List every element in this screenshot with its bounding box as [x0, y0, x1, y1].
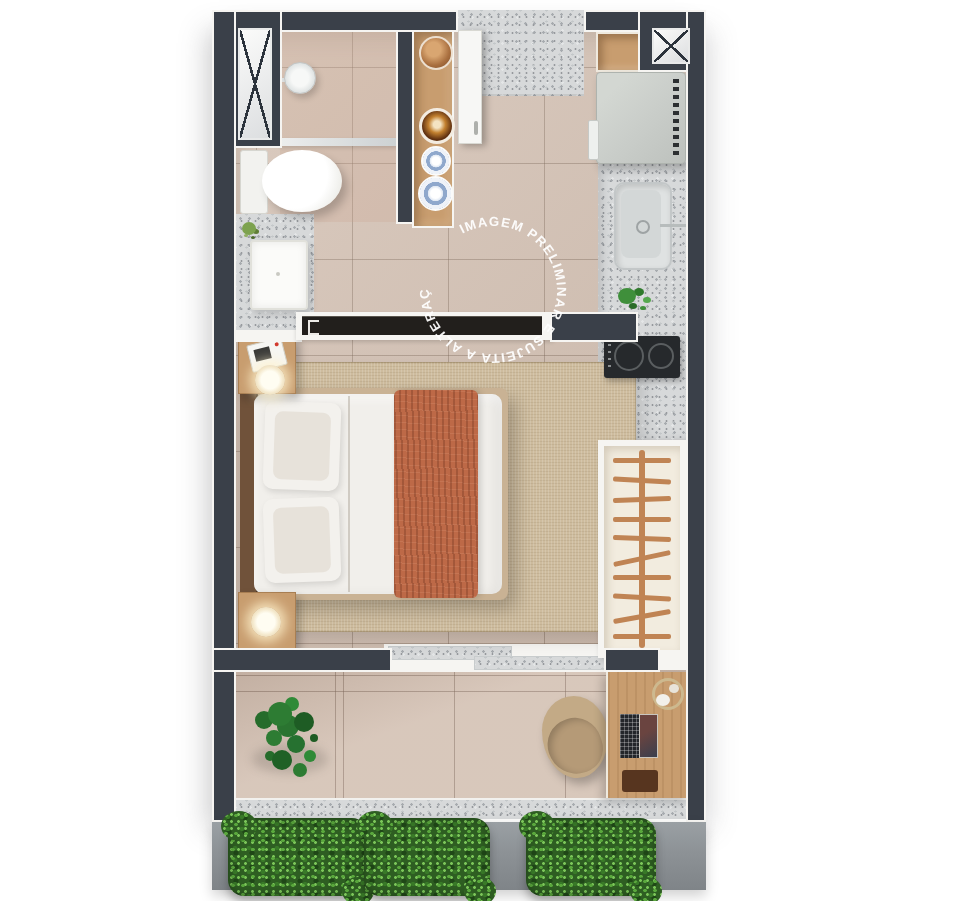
pillow-bottom	[263, 497, 342, 584]
closet-hanger	[613, 634, 671, 639]
plant-shadow	[252, 744, 328, 774]
headphone-ear-right	[669, 684, 679, 693]
watermark-circle: IMAGEM PRELIMINAR E SUJEITA A ALTERAÇÕES…	[398, 195, 588, 385]
refrigerator	[596, 72, 686, 164]
duvet-fold	[348, 396, 350, 592]
closet-hanger	[613, 476, 671, 484]
sink-drain	[276, 272, 280, 276]
nightstand-top	[238, 336, 296, 394]
closet-hanger	[613, 535, 671, 542]
closet	[598, 440, 688, 658]
wall-left	[212, 10, 236, 822]
headphone-ear-left	[656, 694, 670, 706]
laptop-screen	[639, 714, 658, 758]
door-handle	[308, 320, 319, 335]
lamp-top	[255, 365, 285, 395]
wood-bowl-icon	[419, 36, 453, 70]
nightstand-bottom	[238, 592, 296, 650]
shower-glass	[280, 138, 398, 146]
cooktop-controls	[608, 344, 611, 370]
closet-hanger	[613, 575, 671, 580]
toilet	[240, 148, 344, 214]
closet-hanger	[613, 458, 671, 463]
faucet-base	[636, 220, 650, 234]
shaft-x-left	[238, 28, 272, 140]
floor-plan-render: IMAGEM PRELIMINAR E SUJEITA A ALTERAÇÕES…	[0, 0, 964, 901]
vanity-plant	[242, 222, 256, 235]
wall-balcony-right	[604, 648, 660, 672]
headphones-icon	[652, 678, 684, 710]
lamp-bottom	[251, 607, 281, 637]
shaft-x-right	[652, 28, 690, 64]
hedge-planter	[228, 818, 368, 896]
radio-dot	[274, 342, 279, 347]
desk	[606, 672, 690, 798]
planter-ledge	[212, 822, 706, 890]
burner-right	[648, 343, 674, 369]
closet-hanger	[613, 517, 671, 522]
balcony-door-glass-right	[474, 656, 608, 670]
closet-hanger	[613, 593, 671, 601]
toilet-bowl	[262, 150, 342, 212]
herb-bunch	[618, 288, 636, 304]
watermark-text: IMAGEM PRELIMINAR E SUJEITA A ALTERAÇÕES…	[398, 195, 569, 366]
hedge-planter	[364, 818, 490, 896]
entry-door-leaf	[458, 30, 482, 144]
closet-sill	[658, 650, 688, 670]
closet-hanger	[613, 496, 671, 503]
radio-screen	[253, 346, 271, 362]
entry-door-handle	[474, 121, 478, 135]
hedge-planter	[526, 818, 656, 896]
ceramic-plate-icon	[421, 146, 451, 176]
fridge-coil	[673, 79, 679, 155]
laptop	[620, 714, 658, 758]
bath-bed-junction	[236, 330, 302, 342]
burner-left	[614, 341, 644, 371]
kitchen-sink	[614, 182, 672, 270]
shower-head	[284, 62, 316, 94]
amber-bowl-icon	[419, 108, 455, 144]
vanity-sink	[250, 240, 308, 310]
throw-blanket	[394, 390, 478, 598]
potted-plant	[268, 702, 292, 726]
desk-pad	[622, 770, 658, 792]
laptop-keyboard	[620, 714, 639, 758]
pillow-inner	[273, 506, 331, 574]
closet-rack	[604, 446, 680, 652]
bed	[240, 388, 508, 600]
wall-balcony-left	[212, 648, 392, 672]
wall-right	[686, 10, 706, 822]
pillow-inner	[273, 411, 331, 481]
cooktop	[604, 336, 680, 378]
fridge-handle	[588, 120, 599, 160]
pillow-top	[262, 401, 341, 492]
